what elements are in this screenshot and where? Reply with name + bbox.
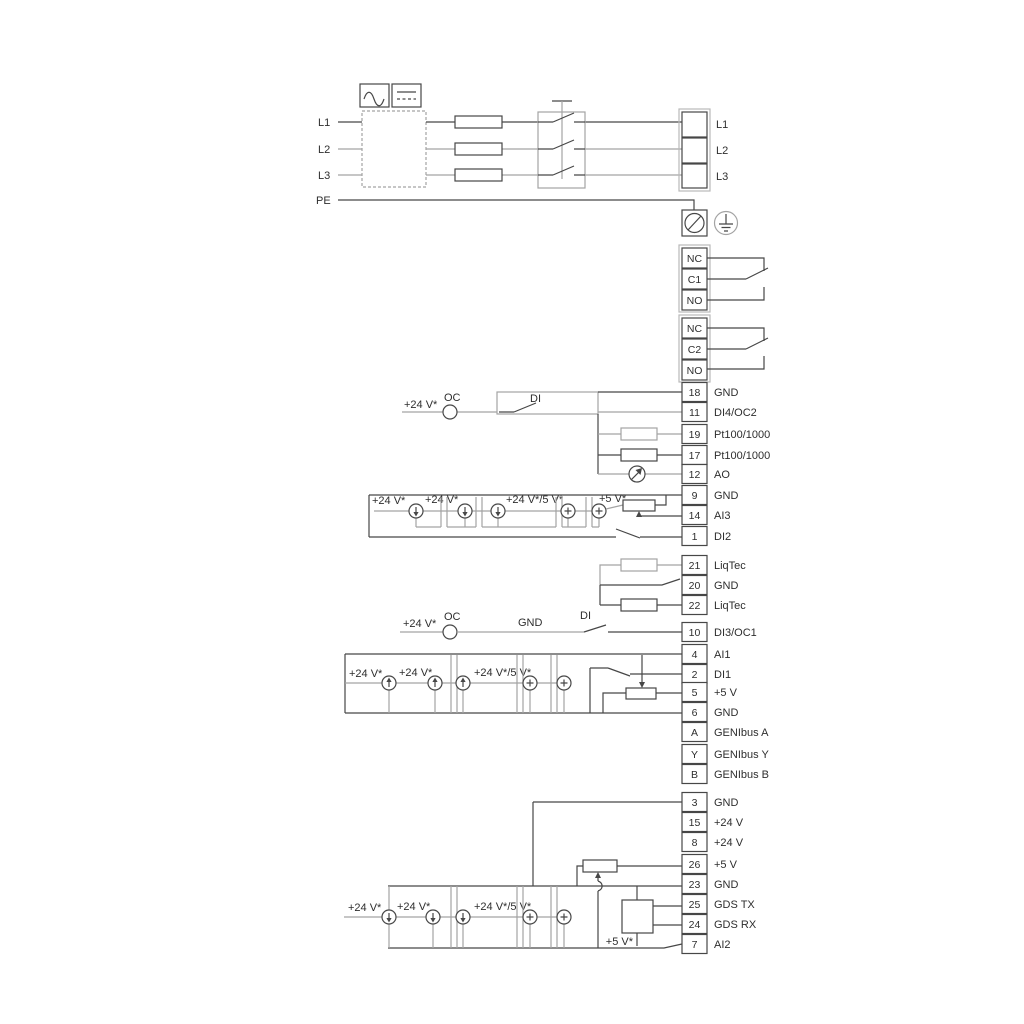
ai3-di2-section: +24 V* +24 V* +24 V*/5 V* +5 V*	[369, 493, 682, 538]
current-source-icon	[456, 910, 470, 924]
v5-label-2: +5 V*	[606, 936, 634, 948]
terminal-number: 3	[692, 797, 698, 809]
terminal-row-Y: YGENIbus Y	[682, 745, 769, 764]
mains-terminal-l1	[682, 112, 707, 137]
terminal-row-B: BGENIbus B	[682, 765, 769, 784]
terminal-number: 7	[692, 939, 698, 951]
oc-label-1: OC	[444, 392, 461, 404]
filter-dashed-box	[362, 111, 426, 187]
terminal-row-17: 17Pt100/1000	[682, 446, 770, 465]
di-switch-2	[584, 625, 682, 632]
voltage-source-icon	[557, 910, 571, 924]
v24-label-1: +24 V*	[404, 399, 438, 411]
earth-terminals	[682, 210, 738, 236]
terminal-row-21: 21LiqTec	[682, 556, 746, 575]
terminal-number: A	[691, 727, 698, 739]
voltage-source-icon	[523, 910, 537, 924]
terminal-number: 25	[689, 899, 701, 911]
terminal-label: GND	[714, 797, 739, 809]
terminal-label: +5 V	[714, 859, 738, 871]
current-source-icon	[382, 910, 396, 924]
terminal-number: 17	[689, 450, 701, 462]
voltage-source-icon	[523, 676, 537, 690]
pot-to-gnd-6	[603, 693, 626, 713]
ai3-circle-stems	[416, 518, 599, 527]
liqtec-sensor-1	[621, 559, 657, 571]
terminal-row-5: 5+5 V	[682, 683, 738, 702]
terminal-label: AO	[714, 469, 730, 481]
terminal-number: 12	[689, 469, 701, 481]
terminal-number: Y	[691, 749, 698, 761]
terminal-row-A: AGENIbus A	[682, 723, 769, 742]
relay1-contact-wiring	[707, 258, 768, 300]
terminal-row-23: 23GND	[682, 875, 739, 894]
terminal-number: 15	[689, 817, 701, 829]
ai1-potentiometer	[626, 688, 656, 699]
voltage-source-icon	[561, 504, 575, 518]
terminal-row-24: 24GDS RX	[682, 915, 757, 934]
terminal-number: 19	[689, 429, 701, 441]
output-label-l3: L3	[716, 171, 728, 183]
terminal-number: 18	[689, 387, 701, 399]
input-label-l1: L1	[318, 117, 330, 129]
di3-oc1-section: +24 V* OC GND DI	[400, 610, 682, 639]
wire-to-3	[533, 802, 682, 886]
relay2-c2-label: C2	[688, 344, 702, 356]
terminal-row-9: 9GND	[682, 486, 739, 505]
wire-into-pot	[606, 505, 623, 509]
main-switch	[538, 101, 585, 188]
v24-label-5: +24 V*	[349, 668, 383, 680]
relay1-nc-label: NC	[687, 253, 703, 265]
terminal-row-1: 1DI2	[682, 527, 731, 546]
terminal-number: 23	[689, 879, 701, 891]
liqtec-wire-20	[600, 579, 680, 585]
ai1-di1-section: +24 V* +24 V* +24 V*/5 V*	[345, 654, 682, 713]
terminal-number: 2	[692, 669, 698, 681]
v24-label-2: +24 V*	[372, 495, 406, 507]
relay2-contact-wiring	[707, 328, 768, 369]
terminal-row-14: 14AI3	[682, 506, 731, 525]
terminal-number: B	[691, 769, 698, 781]
terminal-number: 22	[689, 600, 701, 612]
oc-circle-1	[443, 405, 457, 419]
dc-symbol-box	[392, 84, 421, 107]
di2-wire-switch	[369, 529, 682, 538]
relay1-c1-label: C1	[688, 274, 702, 286]
terminal-label: GENIbus A	[714, 727, 769, 739]
relay1-no-label: NO	[687, 295, 703, 307]
mains-input-section: L1 L2 L3 PE	[316, 84, 738, 236]
di-label-2: DI	[580, 610, 591, 622]
terminal-number: 10	[689, 627, 701, 639]
mains-output-block: L1 L2 L3	[679, 109, 728, 191]
terminal-row-6: 6GND	[682, 703, 739, 722]
terminal-number: 8	[692, 837, 698, 849]
terminal-label: AI1	[714, 649, 731, 661]
current-source-icon	[409, 504, 423, 518]
v24-label-7: +24 V*	[348, 902, 382, 914]
output-label-l1: L1	[716, 119, 728, 131]
relay2-no-label: NO	[687, 365, 703, 377]
terminal-row-10: 10DI3/OC1	[682, 623, 757, 642]
terminal-row-12: 12AO	[682, 465, 730, 484]
oc-circle-2	[443, 625, 457, 639]
input-label-l2: L2	[318, 144, 330, 156]
terminal-row-18: 18GND	[682, 383, 739, 402]
terminal-row-22: 22LiqTec	[682, 596, 746, 615]
terminal-label: Pt100/1000	[714, 429, 770, 441]
terminal-label: GND	[714, 490, 739, 502]
wiring-diagram-page: L1 L2 L3 PE	[0, 0, 1024, 1024]
output-label-l2: L2	[716, 145, 728, 157]
mains-terminal-l3	[682, 164, 707, 188]
terminal-label: AI2	[714, 939, 731, 951]
terminal-number: 4	[692, 649, 698, 661]
terminal-row-2: 2DI1	[682, 665, 731, 684]
current-source-icon	[458, 504, 472, 518]
terminal-number: 26	[689, 859, 701, 871]
terminal-label: GND	[714, 707, 739, 719]
terminal-number: 11	[689, 407, 700, 419]
terminal-row-19: 19Pt100/1000	[682, 425, 770, 444]
current-source-icon	[382, 676, 396, 690]
earth-ground-icon	[719, 214, 733, 231]
terminal-number: 24	[689, 919, 701, 931]
liqtec-section	[600, 559, 682, 611]
ai2-wiper-arrow	[595, 872, 601, 878]
oc-label-2: OC	[444, 611, 461, 623]
terminal-number: 14	[689, 510, 701, 522]
ai3-potentiometer	[623, 500, 655, 511]
terminal-number: 1	[692, 531, 698, 543]
terminal-row-11: 11DI4/OC2	[682, 403, 757, 422]
ai2-potentiometer	[583, 860, 617, 872]
io-terminal-strip: 18GND11DI4/OC219Pt100/100017Pt100/100012…	[682, 383, 770, 954]
ac-symbol-box	[360, 84, 389, 107]
terminal-number: 9	[692, 490, 698, 502]
pot-to-gnd-23	[577, 866, 583, 886]
terminal-row-20: 20GND	[682, 576, 739, 595]
terminal-label: GDS TX	[714, 899, 755, 911]
relay-outputs-section: NC C1 NO NC C2 NO	[679, 245, 768, 382]
voltage-source-icon	[592, 504, 606, 518]
input-label-pe: PE	[316, 195, 331, 207]
terminal-label: GND	[714, 387, 739, 399]
terminal-label: GENIbus B	[714, 769, 769, 781]
ai2-gds-section: +24 V* +24 V* +24 V*/5 V* +5 V*	[344, 802, 682, 948]
terminal-number: 20	[689, 580, 701, 592]
terminal-label: DI3/OC1	[714, 627, 757, 639]
current-source-icon	[491, 504, 505, 518]
terminal-row-15: 15+24 V	[682, 813, 744, 832]
terminal-row-8: 8+24 V	[682, 833, 744, 852]
current-source-icon	[428, 676, 442, 690]
terminal-label: DI4/OC2	[714, 407, 757, 419]
input-label-l3: L3	[318, 170, 330, 182]
terminal-row-4: 4AI1	[682, 645, 731, 664]
wiring-diagram: L1 L2 L3 PE	[0, 0, 1024, 1024]
pt-sensor-2	[621, 449, 657, 461]
pt-sensor-1	[621, 428, 657, 440]
ai1-wiper-arrow	[639, 682, 645, 688]
terminal-label: DI1	[714, 669, 731, 681]
fuse-l1	[455, 116, 502, 128]
wire-to-14	[639, 516, 682, 517]
mains-terminal-l2	[682, 138, 707, 163]
rail-to-7	[388, 944, 682, 948]
v24-label-6: +24 V*	[399, 667, 433, 679]
terminal-row-7: 7AI2	[682, 935, 731, 954]
fuse-l3	[455, 169, 502, 181]
terminal-row-25: 25GDS TX	[682, 895, 755, 914]
terminal-row-26: 26+5 V	[682, 855, 738, 874]
v24-label-8: +24 V*	[397, 901, 431, 913]
terminal-label: LiqTec	[714, 600, 746, 612]
gnd-wire-label: GND	[518, 617, 543, 629]
relay2-nc-label: NC	[687, 323, 703, 335]
di-box	[497, 392, 598, 414]
terminal-label: DI2	[714, 531, 731, 543]
terminal-number: 6	[692, 707, 698, 719]
terminal-number: 5	[692, 687, 698, 699]
ai1-circle-stems	[389, 690, 564, 713]
liqtec-sensor-2	[621, 599, 657, 611]
pot-to-gnd-rail	[655, 495, 666, 505]
current-source-icon	[456, 676, 470, 690]
v24-label-3: +24 V*	[425, 494, 459, 506]
v24-5v-label-1: +24 V*/5 V*	[506, 494, 564, 506]
v24-label-4: +24 V*	[403, 618, 437, 630]
terminal-label: GDS RX	[714, 919, 757, 931]
terminal-label: GENIbus Y	[714, 749, 769, 761]
current-source-icon	[426, 910, 440, 924]
terminal-label: AI3	[714, 510, 731, 522]
terminal-label: LiqTec	[714, 560, 746, 572]
wire-pe	[338, 200, 694, 210]
terminal-label: GND	[714, 580, 739, 592]
terminal-label: GND	[714, 879, 739, 891]
terminal-label: +24 V	[714, 817, 744, 829]
fuse-l2	[455, 143, 502, 155]
terminal-number: 21	[689, 560, 701, 572]
terminal-label: +24 V	[714, 837, 744, 849]
voltage-source-icon	[557, 676, 571, 690]
terminal-label: Pt100/1000	[714, 450, 770, 462]
di4-oc2-section: +24 V* OC DI	[402, 392, 682, 482]
terminal-label: +5 V	[714, 687, 738, 699]
gds-sensor-box	[622, 900, 653, 933]
terminal-row-3: 3GND	[682, 793, 739, 812]
